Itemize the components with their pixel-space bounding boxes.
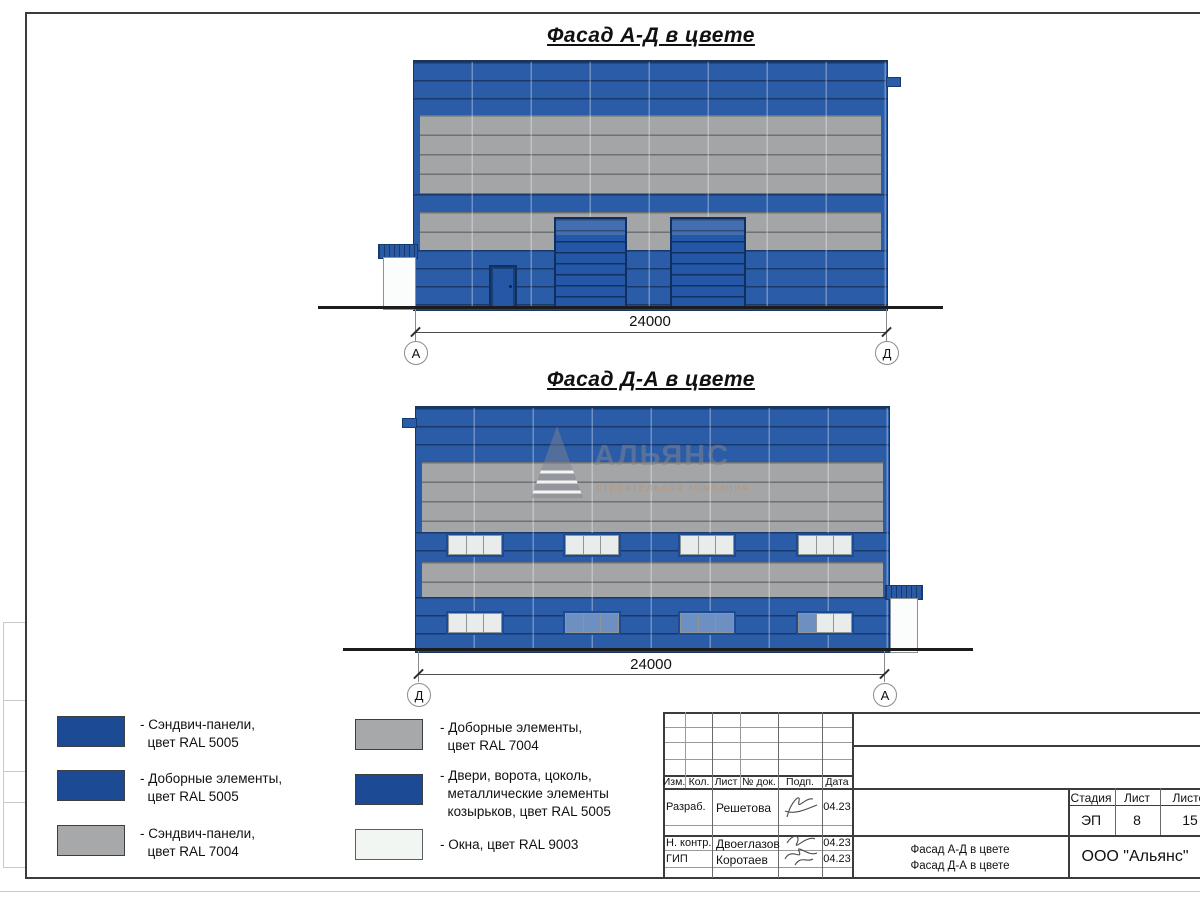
window-pane [601, 536, 618, 554]
legend-label: - Двери, ворота, цоколь, металлические э… [440, 767, 611, 822]
canopy-structure [890, 598, 918, 653]
row-name: Двоеглазов [716, 837, 780, 851]
rev-col-izm: Изм. [663, 776, 686, 788]
titleblock-line [1068, 805, 1200, 806]
dimension-value: 24000 [625, 656, 677, 673]
drawing-sheet: Фасад А-Д в цвете 24000 А Д Фасад Д-А в … [0, 0, 1200, 900]
signature-icon [781, 829, 821, 869]
window-pane [716, 536, 733, 554]
sheets-value: 15 [1182, 812, 1198, 828]
window-pane [566, 536, 583, 554]
paper-edge-line [0, 891, 1200, 892]
drawing-title: Фасад А-Д в цвете Фасад Д-А в цвете [910, 842, 1009, 874]
facade-da-drawing: АЛЬЯНС строительная компания [415, 406, 890, 653]
titleblock-line [778, 712, 779, 878]
panel-joints [414, 62, 887, 310]
sectional-gate [554, 217, 627, 309]
row-date: 04.23 [823, 801, 851, 813]
titleblock-line [712, 712, 713, 878]
legend-swatch-doors-5005 [355, 774, 423, 805]
legend-swatch-trim-7004 [355, 719, 423, 750]
extension-line [884, 651, 885, 682]
legend-label: - Окна, цвет RAL 9003 [440, 836, 578, 854]
titleblock-line [852, 745, 1200, 747]
legend-label: - Сэндвич-панели, цвет RAL 5005 [140, 716, 255, 752]
legend-label: - Доборные элементы, цвет RAL 5005 [140, 770, 282, 806]
window-pane [817, 536, 834, 554]
facade-ad-title: Фасад А-Д в цвете [547, 24, 755, 48]
window-pane [467, 614, 484, 632]
margin-stamp-line [3, 771, 25, 772]
sectional-gate [670, 217, 746, 309]
titleblock-line [663, 759, 852, 760]
dimension-line [418, 674, 884, 675]
window-pane [601, 614, 618, 632]
window [796, 533, 854, 557]
canopy-structure [383, 257, 416, 310]
titleblock-line [663, 712, 1200, 714]
extension-line [886, 309, 887, 341]
roof-flashing-tab [886, 77, 901, 87]
margin-stamp-line [3, 700, 25, 701]
facade-ad-drawing [413, 60, 888, 311]
titleblock-line [663, 742, 852, 743]
door-handle [509, 285, 512, 288]
window [563, 611, 621, 635]
margin-stamp-line [3, 622, 4, 868]
stage-label: Стадия [1071, 791, 1112, 805]
window-pane [799, 614, 816, 632]
axis-marker-left: Д [407, 683, 431, 707]
window-pane [584, 536, 601, 554]
window [796, 611, 854, 635]
signature-icon [781, 791, 821, 823]
row-date: 04.23 [823, 837, 851, 849]
window-pane [699, 536, 716, 554]
titleblock-line [663, 788, 1200, 790]
company-name: ООО "Альянс" [1082, 848, 1189, 866]
titleblock-line [1160, 788, 1161, 835]
stage-value: ЭП [1081, 812, 1101, 828]
dimension-line [415, 332, 886, 333]
window-pane [799, 536, 816, 554]
frame-left-line [25, 12, 27, 878]
window [446, 611, 504, 635]
titleblock-line [663, 825, 852, 826]
rev-col-kol: Кол. [689, 776, 710, 788]
window-pane [449, 614, 466, 632]
entrance-door [489, 265, 517, 310]
window-pane [681, 536, 698, 554]
ground-line [343, 648, 973, 651]
sheet-value: 8 [1133, 812, 1141, 828]
titleblock-line [663, 727, 852, 728]
legend-swatch-windows-9003 [355, 829, 423, 860]
window [678, 533, 736, 557]
titleblock-line [740, 712, 741, 788]
window-pane [484, 614, 501, 632]
window [446, 533, 504, 557]
legend-swatch-sandwich-7004 [57, 825, 125, 856]
margin-stamp-line [3, 802, 25, 803]
window-pane [716, 614, 733, 632]
titleblock-line [1115, 788, 1116, 835]
sheet-label: Лист [1124, 791, 1150, 805]
row-name: Коротаев [716, 853, 768, 867]
facade-da-title: Фасад Д-А в цвете [547, 368, 755, 392]
axis-marker-right: Д [875, 341, 899, 365]
window-pane [584, 614, 601, 632]
window-pane [834, 614, 851, 632]
rev-col-dok: № док. [742, 776, 776, 788]
sheets-label: Листов [1173, 791, 1200, 805]
legend-label: - Сэндвич-панели, цвет RAL 7004 [140, 825, 255, 861]
axis-marker-left: А [404, 341, 428, 365]
window-pane [817, 614, 834, 632]
frame-top-line [25, 12, 1200, 14]
window [563, 533, 621, 557]
window-pane [699, 614, 716, 632]
row-name: Решетова [716, 801, 771, 815]
legend-swatch-sandwich-5005 [57, 716, 125, 747]
legend-swatch-trim-5005 [57, 770, 125, 801]
extension-line [418, 651, 419, 682]
window-pane [449, 536, 466, 554]
rev-col-podp: Подп. [786, 776, 814, 788]
legend-label: - Доборные элементы, цвет RAL 7004 [440, 719, 582, 755]
row-role: Н. контр. [666, 837, 711, 849]
row-role: ГИП [666, 853, 688, 865]
frame-bottom-line [25, 877, 1200, 879]
row-date: 04.23 [823, 853, 851, 865]
window-pane [566, 614, 583, 632]
rev-col-data: Дата [825, 776, 848, 788]
window-pane [484, 536, 501, 554]
roof-flashing-tab [402, 418, 417, 428]
window [678, 611, 736, 635]
ground-line [318, 306, 943, 309]
titleblock-line [663, 867, 852, 868]
extension-line [415, 309, 416, 341]
titleblock-line [663, 712, 665, 878]
dimension-value: 24000 [624, 313, 676, 330]
margin-stamp-line [3, 867, 25, 868]
margin-stamp-line [3, 622, 25, 623]
titleblock-line [852, 712, 854, 878]
row-role: Разраб. [666, 801, 706, 813]
rev-col-list: Лист [715, 776, 738, 788]
window-pane [834, 536, 851, 554]
axis-marker-right: А [873, 683, 897, 707]
window-pane [681, 614, 698, 632]
window-pane [467, 536, 484, 554]
